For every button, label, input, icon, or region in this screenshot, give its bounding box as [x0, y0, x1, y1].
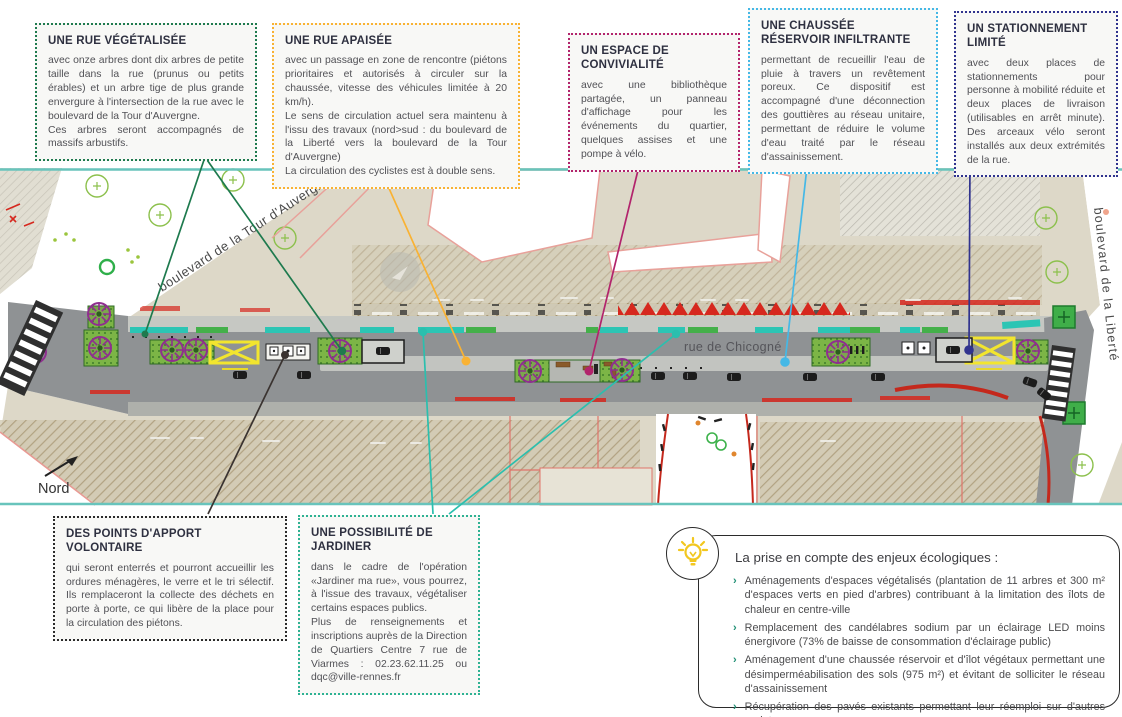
eco-bullet-text: Récupération des pavés existants permett… [745, 700, 1105, 717]
callout-title: UN ESPACE DE CONVIVIALITÉ [581, 44, 727, 73]
callout-espace-convivialite: UN ESPACE DE CONVIVIALITÉ avec une bibli… [568, 33, 740, 172]
bullet-chevron: › [733, 574, 737, 617]
north-label: Nord [38, 481, 69, 497]
callout-stationnement-limite: UN STATIONNEMENT LIMITÉ avec deux places… [954, 11, 1118, 177]
bullet-chevron: › [733, 653, 737, 696]
callout-body: avec deux places de stationnements pour … [967, 57, 1105, 168]
eco-bullet-item: › Aménagement d'une chaussée réservoir e… [733, 653, 1105, 696]
callout-body: avec onze arbres dont dix arbres de peti… [48, 54, 244, 151]
callout-title: UNE RUE APAISÉE [285, 34, 507, 48]
eco-bullet-text: Aménagement d'une chaussée réservoir et … [745, 653, 1105, 696]
callout-body: avec une bibliothèque partagée, un panne… [581, 79, 727, 162]
callout-rue-apaisee: UNE RUE APAISÉE avec un passage en zone … [272, 23, 520, 189]
callout-title: UN STATIONNEMENT LIMITÉ [967, 22, 1105, 51]
eco-panel-badge [666, 527, 719, 580]
eco-bullet-text: Remplacement des candélabres sodium par … [745, 621, 1105, 650]
eco-bullet-item: › Aménagements d'espaces végétalisés (pl… [733, 574, 1105, 617]
callout-title: UNE POSSIBILITÉ DE JARDINER [311, 526, 467, 555]
eco-bullet-item: › Récupération des pavés existants perme… [733, 700, 1105, 717]
callout-body: permettant de recueillir l'eau de pluie … [761, 54, 925, 165]
eco-panel-title: La prise en compte des enjeux écologique… [735, 550, 1105, 565]
bullet-chevron: › [733, 700, 737, 717]
callout-title: DES POINTS D'APPORT VOLONTAIRE [66, 527, 274, 556]
map-label-rue-de-chicogne: rue de Chicogné [684, 340, 782, 354]
callout-body: qui seront enterrés et pourront accueill… [66, 562, 274, 631]
plan-page: boulevard de la Tour d'Auvergne rue de C… [0, 0, 1122, 717]
bullet-chevron: › [733, 621, 737, 650]
callout-title: UNE CHAUSSÉE RÉSERVOIR INFILTRANTE [761, 19, 925, 48]
callout-points-apport-volontaire: DES POINTS D'APPORT VOLONTAIRE qui seron… [53, 516, 287, 641]
callout-chaussee-reservoir: UNE CHAUSSÉE RÉSERVOIR INFILTRANTE perme… [748, 8, 938, 174]
callout-body: dans le cadre de l'opération «Jardiner m… [311, 561, 467, 685]
eco-bullet-text: Aménagements d'espaces végétalisés (plan… [745, 574, 1105, 617]
callout-rue-vegetalisee: UNE RUE VÉGÉTALISÉE avec onze arbres don… [35, 23, 257, 161]
lightbulb-icon [676, 535, 710, 573]
south-courtyard [656, 414, 756, 505]
eco-bullet-item: › Remplacement des candélabres sodium pa… [733, 621, 1105, 650]
eco-panel: La prise en compte des enjeux écologique… [698, 535, 1120, 708]
callout-title: UNE RUE VÉGÉTALISÉE [48, 34, 244, 48]
callout-possibilite-jardiner: UNE POSSIBILITÉ DE JARDINER dans le cadr… [298, 515, 480, 695]
callout-body: avec un passage en zone de rencontre (pi… [285, 54, 507, 178]
